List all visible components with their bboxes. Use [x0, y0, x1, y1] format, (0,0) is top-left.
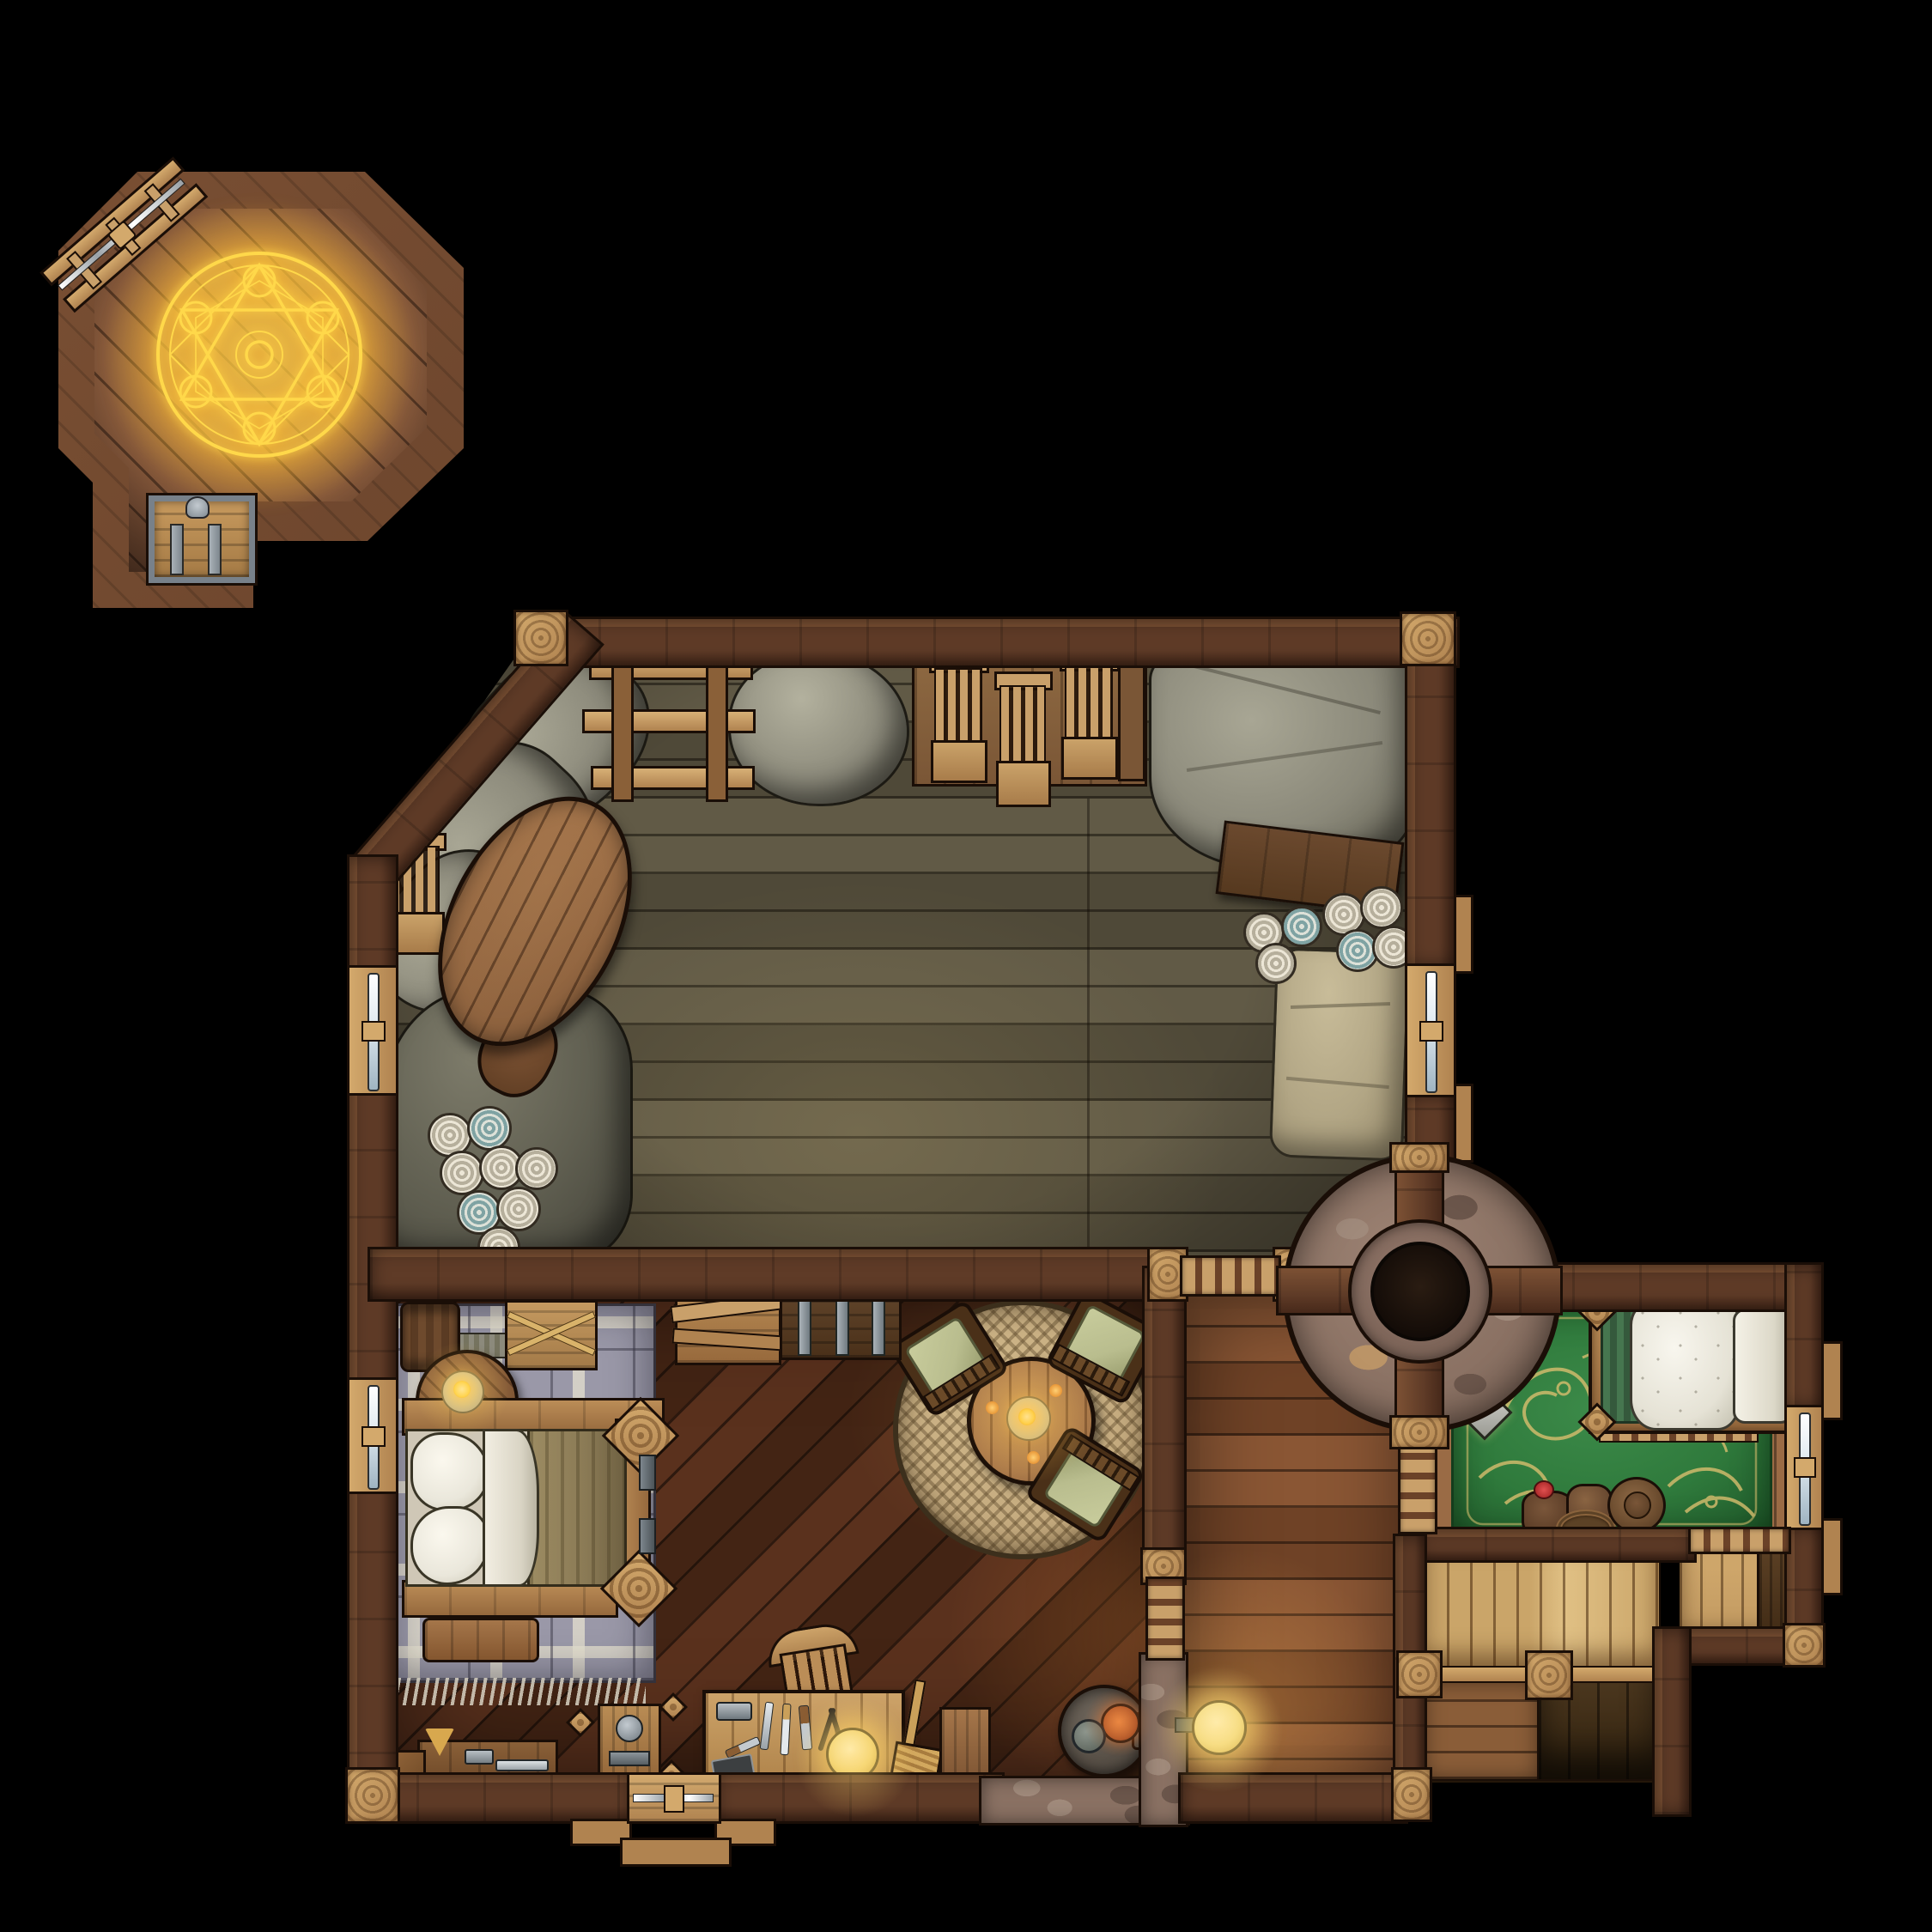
mattress-crease: [1286, 1077, 1389, 1089]
window-mullion: [1794, 1457, 1816, 1478]
guest-bed-fur-cover: [1630, 1302, 1740, 1431]
hammer: [465, 1749, 494, 1765]
wall-bottom-hall: [1178, 1772, 1408, 1824]
window-mullion: [1419, 1021, 1443, 1042]
chair-seat: [931, 740, 987, 783]
wall-attic-top: [529, 617, 1460, 668]
fabric-bolt: [1281, 906, 1322, 947]
stove-lid-knob: [1072, 1719, 1106, 1753]
bed-rail-clasp: [639, 1518, 656, 1554]
rack-side-post: [1118, 659, 1145, 781]
chair-slats: [999, 685, 1046, 762]
chest-strap-right: [208, 524, 222, 575]
drawknife: [495, 1759, 549, 1771]
wall-right-attic-upper: [1405, 617, 1456, 969]
battlemap-stage: [0, 0, 1932, 1932]
attic-floor-seam: [1087, 799, 1090, 1267]
stair-newel-post-left: [1396, 1650, 1443, 1698]
mattress-crease: [1291, 1002, 1390, 1009]
wall-bottom-mid: [713, 1772, 1005, 1824]
post-top-left-corner: [513, 610, 568, 666]
post-bottom-left-corner: [345, 1767, 400, 1824]
door-guest-to-closet: [1688, 1527, 1791, 1554]
press-bar: [609, 1751, 650, 1766]
straw-whisk: [425, 1728, 454, 1756]
stair-newel-post-right: [1525, 1650, 1573, 1700]
knife: [780, 1704, 791, 1755]
wall-guest-right-upper: [1784, 1262, 1824, 1410]
table-ember-dot: [1027, 1451, 1040, 1464]
window-mullion: [361, 1021, 386, 1042]
bed-pillow-top: [410, 1432, 489, 1511]
rack-chair-1: [929, 654, 984, 781]
door-dining-to-hall: [1145, 1577, 1185, 1661]
loose-plank: [672, 1327, 785, 1351]
chisel: [799, 1705, 812, 1751]
chair-seat: [996, 761, 1051, 807]
window-bedroom-left: [347, 1377, 398, 1494]
wall-divider-west: [368, 1247, 1185, 1302]
stove-ember-door: [1101, 1704, 1140, 1743]
wall-dining-hall: [1142, 1266, 1187, 1582]
fireplace-flue-hole: [1370, 1242, 1470, 1341]
guest-bed-frame: [1589, 1297, 1801, 1434]
window-mullion: [361, 1426, 386, 1447]
window-attic-left: [347, 965, 398, 1096]
stored-bolt: [440, 1151, 484, 1195]
stacked-benches: [580, 646, 756, 805]
post-top-right-corner: [1400, 611, 1456, 666]
bedroll-mattress: [1269, 947, 1410, 1161]
red-flower: [1534, 1480, 1554, 1499]
rack-chair-2: [994, 671, 1048, 805]
door-south-exterior: [627, 1772, 721, 1824]
bed-folded-sheet: [483, 1429, 539, 1587]
bed-rail-clasp: [639, 1455, 656, 1491]
bed-blanket: [527, 1429, 627, 1587]
chair-slats: [1065, 666, 1113, 738]
magic-circle: [131, 226, 388, 483]
stored-bolt: [467, 1106, 512, 1151]
chair-slats: [934, 668, 982, 742]
sheet-fold-line-2: [1187, 741, 1382, 772]
bench-post-left: [611, 649, 634, 802]
post-hall-bottom: [1391, 1767, 1432, 1822]
wall-stairs-right: [1652, 1626, 1692, 1817]
stored-bolt: [496, 1187, 541, 1231]
candle-flame: [453, 1381, 471, 1398]
wall-guest-stairs-divider: [1415, 1527, 1697, 1563]
chest-strap-left: [170, 524, 184, 575]
fabric-bolt: [1360, 886, 1403, 929]
knife: [760, 1702, 775, 1751]
tower-chest: [149, 495, 255, 583]
door-attic-to-hall: [1180, 1255, 1281, 1297]
hammer-head: [716, 1702, 752, 1721]
post-closet-corner: [1783, 1623, 1826, 1668]
bed-foot-bench: [422, 1618, 539, 1662]
chair-seat: [1061, 737, 1118, 780]
table-ember-dot: [1049, 1384, 1062, 1397]
rack-chair-3: [1060, 653, 1115, 778]
stored-bolt: [515, 1147, 558, 1190]
press-screw: [616, 1715, 643, 1742]
traveler-hat: [1607, 1477, 1666, 1534]
table-ember-dot: [986, 1401, 999, 1414]
window-attic-right: [1405, 963, 1456, 1097]
door-latch-block: [664, 1785, 684, 1813]
fabric-bolt: [1255, 943, 1297, 984]
chest-lock: [185, 496, 210, 519]
table-candle-flame: [1018, 1408, 1036, 1425]
rug-fringe: [388, 1678, 646, 1705]
window-guest-right: [1784, 1405, 1824, 1530]
bench-plank-2: [582, 709, 756, 733]
door-step-center: [620, 1838, 732, 1867]
fireplace-beam-end-south: [1389, 1415, 1449, 1449]
sheet-fold-line-1: [1180, 661, 1381, 714]
bench-post-right: [706, 649, 728, 802]
hat-crown: [1624, 1492, 1651, 1519]
roped-crate: [505, 1300, 598, 1370]
hall-lamp: [1192, 1700, 1247, 1755]
fireplace-beam-end-north: [1389, 1142, 1449, 1173]
